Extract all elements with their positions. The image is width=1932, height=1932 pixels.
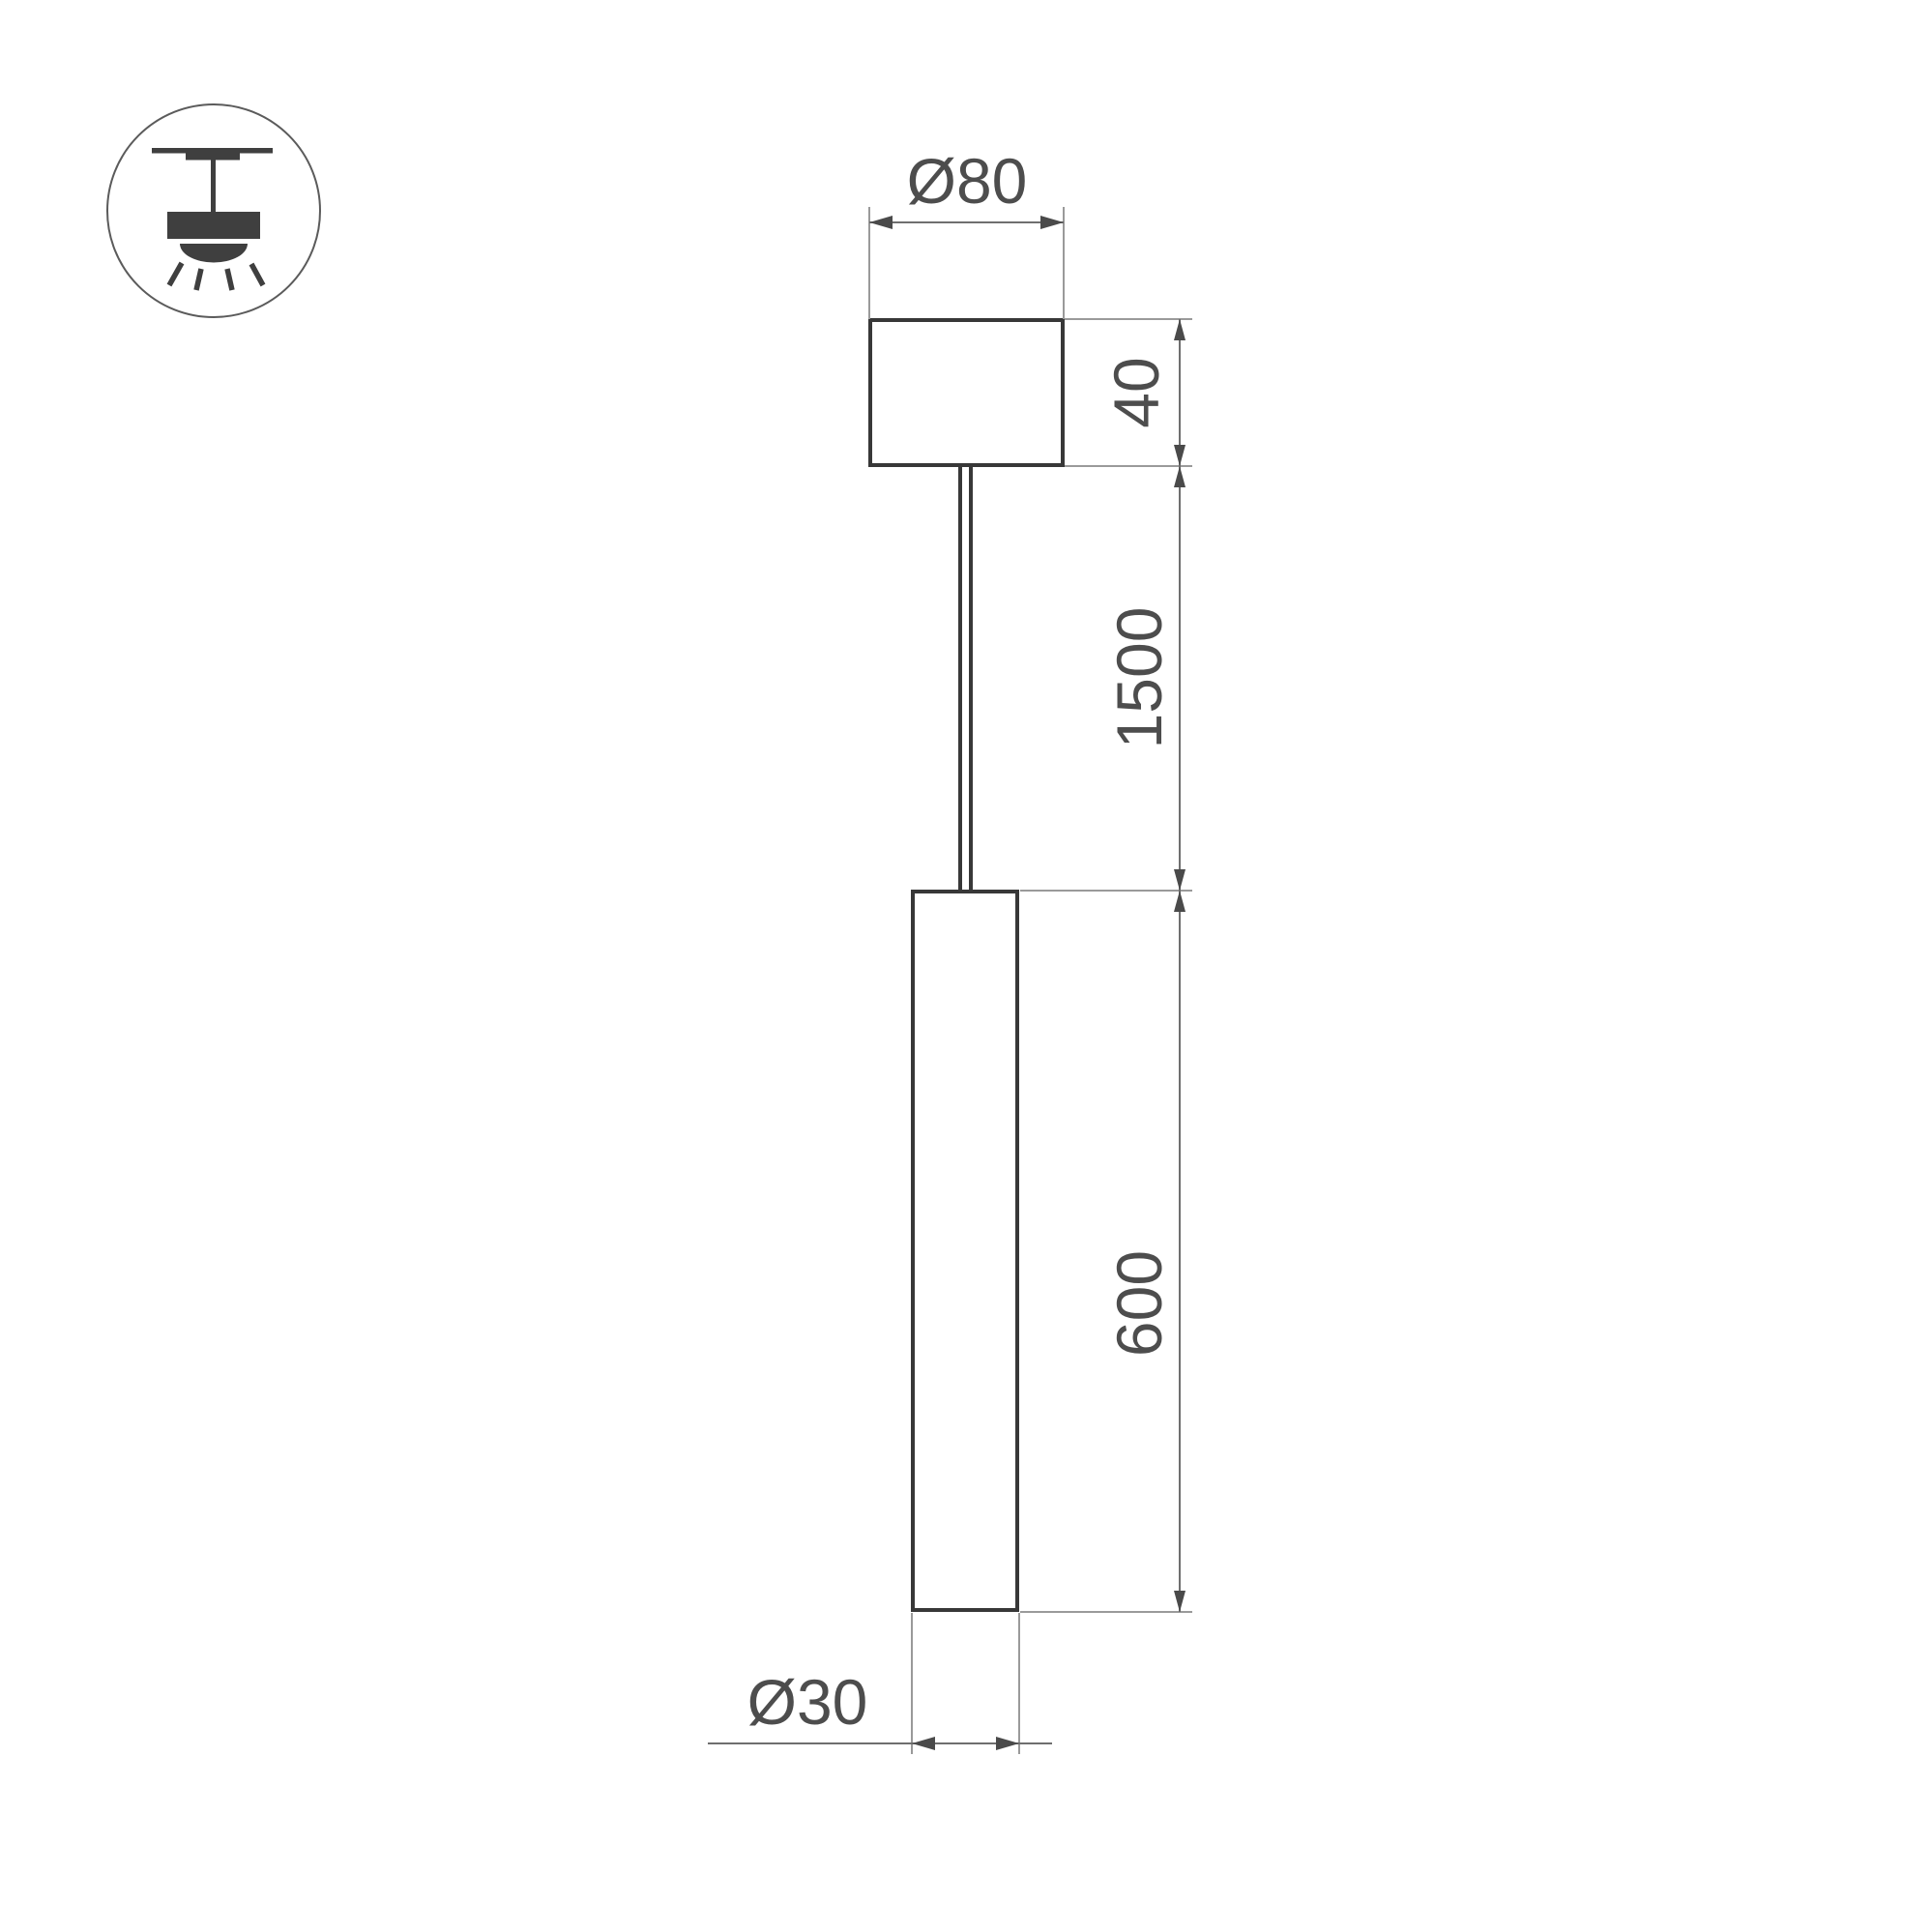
label-canopy-height: 40 xyxy=(1104,357,1168,427)
arrowhead-up-icon xyxy=(1174,891,1186,912)
canopy-outline xyxy=(868,318,1065,467)
label-canopy-diameter: Ø80 xyxy=(907,149,1028,213)
arrowhead-up-icon xyxy=(1174,319,1186,340)
arrowhead-down-icon xyxy=(1174,445,1186,466)
ext-line-tube-left xyxy=(911,1613,913,1754)
dim-line-canopy-diameter xyxy=(869,221,1064,223)
label-suspension-length: 1500 xyxy=(1107,607,1171,749)
icon-lamp-body xyxy=(167,212,260,239)
tube-lamp-outline xyxy=(911,890,1019,1612)
label-tube-diameter: Ø30 xyxy=(747,1670,868,1734)
dimension-drawing-page: Ø80 40 1500 600 Ø30 xyxy=(0,0,1932,1932)
arrowhead-right-icon xyxy=(996,1737,1019,1750)
arrowhead-left-icon xyxy=(869,216,893,229)
icon-ceiling-line xyxy=(152,148,273,154)
ext-line-tube-bottom xyxy=(1020,1611,1192,1613)
arrowhead-left-icon xyxy=(912,1737,935,1750)
icon-suspension-stem xyxy=(211,160,216,214)
dim-line-vertical-chain xyxy=(1179,319,1181,1612)
arrowhead-up-icon xyxy=(1174,466,1186,487)
pendant-mount-badge xyxy=(104,102,323,326)
icon-canopy-plate xyxy=(186,154,240,161)
ext-line-tube-right xyxy=(1018,1613,1020,1754)
ext-line-tube-top xyxy=(1020,890,1192,892)
label-tube-length: 600 xyxy=(1107,1250,1171,1357)
suspension-wire-right-edge xyxy=(969,467,973,891)
arrowhead-down-icon xyxy=(1174,1591,1186,1612)
suspension-wire-left-edge xyxy=(958,467,962,891)
arrowhead-right-icon xyxy=(1040,216,1064,229)
arrowhead-down-icon xyxy=(1174,869,1186,891)
ceiling-pendant-light-icon xyxy=(104,102,323,321)
